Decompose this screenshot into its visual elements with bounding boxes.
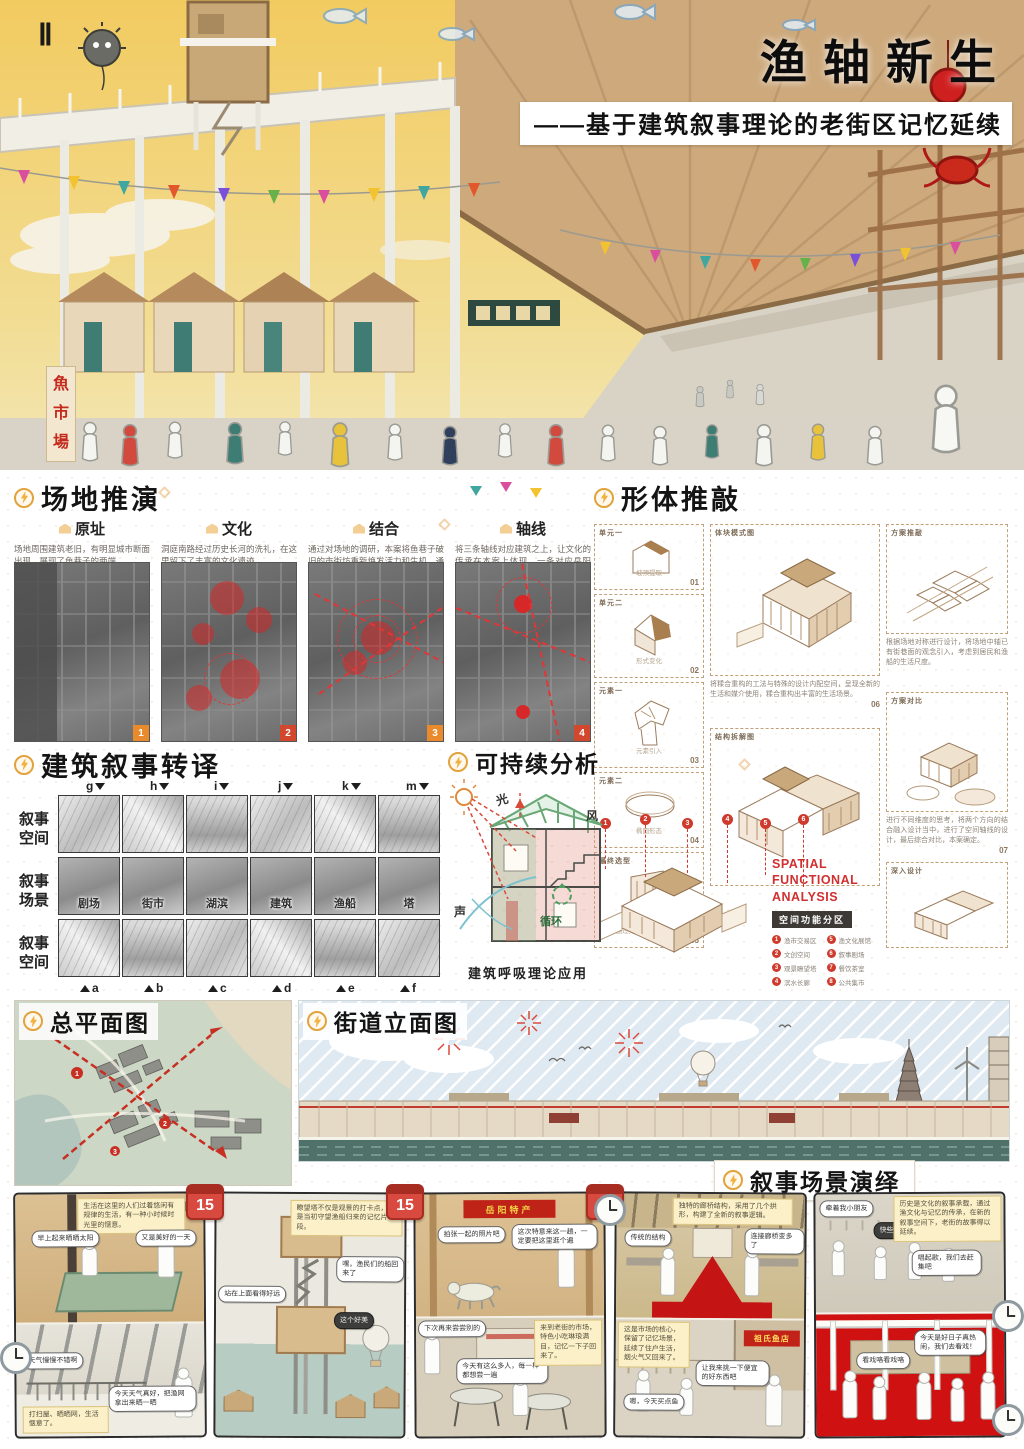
form-section-title: 形体推敲 [621,478,741,517]
spatial-marker: 2 [640,814,651,825]
speech-bubble: 看戏咯看戏咯 [856,1352,910,1369]
narrative-scene-cell: 渔船 [314,857,376,915]
poster-title: 渔轴新生 [760,24,1012,93]
sustain-section-title: 可持续分析 [475,745,600,779]
narrative-scene-cell: 建筑 [250,857,312,915]
panel2-tower-scene: 瞭望塔不仅是观景的打卡点，更是当初守望渔船归来的记忆片段。 站在上面看得好远 嘿… [215,1194,404,1437]
site-item-label: 结合 [308,518,444,539]
speech-bubble: 早上起来晒晒太阳 [31,1230,99,1248]
spatial-marker: 3 [682,818,693,829]
form-step-2: 单元二 形式变化 02 [594,594,704,678]
lightbulb-icon [594,488,614,508]
triangle-down-icon [95,783,105,790]
map-number-badge: 3 [427,725,443,741]
speech-bubble: 又是美好的一天 [135,1229,196,1247]
narrative-cell [378,795,440,853]
triangle-up-icon [272,985,282,992]
map-number-badge: 1 [133,725,149,741]
spatial-title-en2: FUNCTIONAL ANALYSIS [772,872,880,905]
site-map-1: 1 [14,562,150,742]
form-compare-diagram: 方案对比 [886,692,1008,812]
caption-note: 这是市场的核心，保留了记忆场景，延续了住户生活，烟火气又回来了。 [618,1321,690,1367]
section-narrative-translation: 建筑叙事转译 叙事空间 叙事场景 叙事空间 g h i j k m 剧场 街市 … [14,745,446,995]
speech-bubble: 让我来挑一下便宜的好东西吧 [696,1360,770,1387]
caption-note: 独特的廊桥结构，采用了几个拱形，构建了全新的叙事逻辑。 [673,1198,793,1226]
column-letter: m [406,779,429,793]
site-map-4: 4 [455,562,591,742]
column-letter: i [214,779,229,793]
section-form-study: 形体推敲 单元一 坡顶提取 01 单元二 形式变化 02 元素一 元素引入 03… [594,478,1014,980]
panel4-street-scene: 祖氏鱼店 这是市场的核心，保留了记忆场景，延续了住户生活，烟火气又回来了。 嗯，… [615,1319,804,1436]
narrative-cell [250,795,312,853]
narrative-cell [122,919,184,977]
triangle-down-icon [351,783,361,790]
narrative-scene-cell: 塔 [378,857,440,915]
fish-market-sign: 魚 市 場 [46,366,76,462]
panel1-attic-scene: 天气慢慢不错啊 今天天气真好，把渔网拿出来晒一晒 打扫屋、晒晒网，生活惬意了。 [16,1323,205,1436]
label-wind: 风 [586,807,598,824]
column-letter: j [278,779,293,793]
comic-panel-1: 生活在这里的人们过着悠闲有规律的生活，有一种小时候时光里的惬意。 早上起来晒晒太… [13,1191,207,1438]
triangle-down-icon [419,783,429,790]
hero-render: Ⅱ 渔轴新生 ——基于建筑叙事理论的老街区记忆延续 魚 市 場 [0,0,1024,470]
narrative-row-label: 叙事场景 [14,873,54,911]
triangle-up-icon [208,985,218,992]
poster-root: Ⅱ 渔轴新生 ——基于建筑叙事理论的老街区记忆延续 魚 市 場 场地推演 原址场… [0,0,1024,1449]
speech-bubble: 唱起歌，我们去赶集吧 [912,1250,982,1277]
form-step-3: 元素一 元素引入 03 [594,682,704,768]
narrative-cell [314,919,376,977]
column-letter: f [400,981,416,995]
map-number-badge: 4 [574,725,590,741]
narrative-cell [58,795,120,853]
label-sound: 声 [454,903,466,920]
narrative-cell [378,919,440,977]
column-letter: a [80,981,99,995]
panel3-plaza-scene: 下次再来尝尝别的 今天有这么多人，每一样都想尝一遍 来到老街的市场，特色小吃琳琅… [416,1318,605,1437]
comic-panel-3: 岳阳特产 拍张一起的照片吧 这次特意来这一趟，一定要把这里逛个遍 下次再来尝尝别… [413,1191,606,1438]
site-map-2: 2 [161,562,297,742]
section-street-elevation: 街道立面图 [298,1000,1010,1162]
triangle-down-icon [283,783,293,790]
narrative-cell [122,795,184,853]
svg-text:3: 3 [113,1149,117,1156]
house-icon [353,524,365,534]
column-letter: c [208,981,227,995]
column-letter: g [86,779,105,793]
form-step-1: 单元一 坡顶提取 01 [594,524,704,590]
section-sustainability: 可持续分析 [448,745,608,991]
site-section-title: 场地推演 [41,478,161,517]
form-deep-design: 深入设计 [886,862,1008,948]
spatial-marker: 4 [722,814,733,825]
spatial-axon-drawing [594,834,764,974]
caption-note: 打扫屋、晒晒网，生活惬意了。 [23,1406,109,1433]
lightbulb-icon [307,1011,327,1031]
sign-char: 市 [53,406,69,422]
site-item-label: 轴线 [455,518,591,539]
site-map-3: 3 [308,562,444,742]
narrative-cell [314,795,376,853]
narrative-section-title: 建筑叙事转译 [41,745,221,784]
calendar-badge: 15 [186,1184,224,1220]
form-scheme-diagram: 方案推敲 [886,524,1008,634]
speech-bubble: 传统的结构 [624,1229,671,1246]
lightbulb-icon [23,1011,43,1031]
masterplan-header-chip: 总平面图 [19,1003,158,1040]
triangle-up-icon [400,985,410,992]
column-letter: h [150,779,169,793]
narrative-cell [186,795,248,853]
triangle-up-icon [144,985,154,992]
narrative-cell [58,919,120,977]
sustain-section-header: 可持续分析 [448,745,608,779]
speech-bubble: 今天是好日子真热闹，我们去看戏！ [914,1330,986,1357]
spatial-title-zh: 空间功能分区 [772,911,852,928]
spatial-analysis: 1 2 3 4 5 6 SPATIAL FUNCTIONAL ANALYSIS … [594,818,880,980]
spatial-title-en1: SPATIAL [772,856,880,872]
lightbulb-icon [448,752,468,772]
form-mass-text: 将糅合重构的工法与特殊的设计内配空间，呈现全新的生活和媒介使用，糅合重构出丰富的… [710,680,880,724]
speech-bubble: 拍张一起的照片吧 [438,1226,506,1243]
caption-note: 历史是文化的叙事承载，通过渔文化与记忆的传承，在新的叙事空间下，老街的故事得以延… [893,1196,1001,1242]
calendar-badge: 15 [386,1184,424,1220]
panel5-red-plaza-scene: 今天是好日子真热闹，我们去看戏！ 看戏咯看戏咯 [816,1314,1005,1437]
speech-bubble: 今天天气真好，把渔网拿出来晒一晒 [108,1385,196,1412]
narrative-cell [186,919,248,977]
confetti-triangle [530,488,542,498]
speech-bubble: 这个好美 [334,1312,374,1329]
column-letter: e [336,981,355,995]
speech-bubble: 嗯，今天买点鱼 [623,1393,684,1411]
panel4-corridor-scene: 独特的廊桥结构，采用了几个拱形，构建了全新的叙事逻辑。 传统的结构 连接廊桥变多… [616,1193,805,1318]
panel1-bedroom-scene: 生活在这里的人们过着悠闲有规律的生活，有一种小时候时光里的惬意。 早上起来晒晒太… [15,1193,204,1322]
triangle-up-icon [80,985,90,992]
label-cycle: 循环 [540,913,562,929]
lightbulb-icon [14,488,34,508]
confetti-triangle [500,482,512,492]
spatial-marker: 5 [760,818,771,829]
column-letter: d [272,981,291,995]
lightbulb-icon [14,755,34,775]
comic-panel-4: 独特的廊桥结构，采用了几个拱形，构建了全新的叙事逻辑。 传统的结构 连接廊桥变多… [613,1191,807,1438]
roman-numeral: Ⅱ [38,18,53,53]
poster-subtitle: ——基于建筑叙事理论的老街区记忆延续 [520,102,1012,145]
map-number-badge: 2 [280,725,296,741]
speech-bubble: 下次再来尝尝别的 [418,1320,486,1337]
pufferfish-icon [70,22,140,92]
confetti-triangle [470,486,482,496]
house-icon [500,524,512,534]
sustain-caption: 建筑呼吸理论应用 [448,963,608,982]
column-letter: k [342,779,361,793]
spatial-info: SPATIAL FUNCTIONAL ANALYSIS 空间功能分区 1渔市交易… [772,856,880,991]
speech-bubble: 牵着我小朋友 [819,1200,873,1217]
house-icon [206,524,218,534]
triangle-down-icon [159,783,169,790]
elevation-header-chip: 街道立面图 [303,1003,467,1040]
form-compare-text: 进行不同维度的思考，将两个方向的结合融入设计当中，进行了空间轴线的设计，最后综合… [886,816,1008,858]
form-scheme-text: 根据场地对称进行设计，将场地中轴已有街巷面的观念引入，考虑到居民和渔船的生活尺度… [886,638,1008,690]
sign-char: 場 [53,435,69,451]
triangle-down-icon [219,783,229,790]
speech-bubble: 这次特意来这一趟，一定要把这里逛个遍 [512,1224,598,1251]
comic-panel-5: 牵着我小朋友 快些快些 历史是文化的叙事承载，通过渔文化与记忆的传承，在新的叙事… [813,1191,1006,1438]
narrative-scene-cell: 湖滨 [186,857,248,915]
narrative-section-header: 建筑叙事转译 [14,745,446,784]
narrative-scene-cell: 街市 [122,857,184,915]
triangle-up-icon [336,985,346,992]
svg-text:1: 1 [75,1071,79,1078]
caption-note: 来到老街的市场，特色小吃琳琅满目，记忆一下子回来了。 [534,1320,602,1366]
house-icon [59,524,71,534]
speech-bubble: 嘿，渔民们的船回来了 [336,1256,404,1283]
speech-bubble: 站在上面看得好远 [218,1286,286,1303]
clock-icon [594,1194,626,1226]
site-item-label: 原址 [14,518,150,539]
panel3-market-scene: 岳阳特产 拍张一起的照片吧 这次特意来这一趟，一定要把这里逛个遍 [415,1194,604,1317]
lightbulb-icon [723,1170,743,1190]
clock-icon [992,1404,1024,1436]
elevation-title: 街道立面图 [334,1004,459,1038]
comic-panel-2: 瞭望塔不仅是观景的打卡点，更是当初守望渔船归来的记忆片段。 站在上面看得好远 嘿… [213,1191,406,1438]
clock-icon [992,1300,1024,1332]
narrative-row-label: 叙事空间 [14,935,54,973]
narrative-cell [250,919,312,977]
form-mass-diagram: 体块模式图 [710,524,880,676]
masterplan-title: 总平面图 [50,1004,150,1038]
clock-icon [0,1342,32,1374]
narrative-row-label: 叙事空间 [14,811,54,849]
site-item-label: 文化 [161,518,297,539]
column-letter: b [144,981,163,995]
sign-char: 魚 [53,377,69,393]
narrative-scene-cell: 剧场 [58,857,120,915]
store-sign: 岳阳特产 [463,1200,555,1218]
section-site-deduction: 场地推演 原址场地周围建筑老旧，有明显城市断面出现，展现了鱼巷子的两端。 文化洞… [14,478,592,744]
breathing-house-diagram [450,779,606,955]
speech-bubble: 连接廊桥变多了 [744,1228,804,1255]
panel5-street-scene: 牵着我小朋友 快些快些 历史是文化的叙事承载，通过渔文化与记忆的传承，在新的叙事… [815,1194,1004,1313]
spatial-marker: 6 [798,814,809,825]
store-sign: 祖氏鱼店 [744,1330,800,1346]
svg-text:2: 2 [163,1121,167,1128]
form-section-header: 形体推敲 [594,478,1014,517]
section-masterplan: 123 总平面图 [14,1000,292,1186]
